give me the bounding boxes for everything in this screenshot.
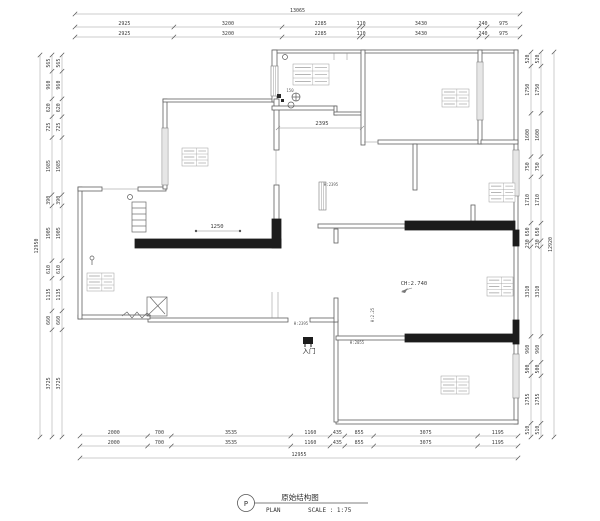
wall — [378, 140, 481, 144]
dim-label: 660 — [46, 316, 52, 325]
dim-label: 12955 — [291, 452, 306, 458]
dim-chain-top: 2925320022851103430240975292532002285110… — [73, 8, 522, 39]
dim-label: 3200 — [222, 21, 234, 27]
window — [162, 128, 168, 185]
dim-label: 3310 — [525, 286, 531, 298]
room-info-table — [487, 277, 513, 296]
load-bearing-wall — [513, 230, 519, 246]
drain-size-label: 150 — [286, 88, 294, 93]
dim-label: 565 — [56, 59, 62, 68]
room-info-table — [442, 89, 469, 107]
beam-height-label-1: H:2395 — [324, 182, 339, 187]
dim-label: 565 — [46, 59, 52, 68]
dim-label: 650 — [525, 227, 531, 236]
dim-label: 975 — [499, 21, 508, 27]
room-info-table — [182, 148, 208, 166]
dim-label: 510 — [525, 426, 531, 435]
title-block: P 原始结构图 PLAN SCALE : 1:75 — [238, 492, 369, 514]
dim-label: 960 — [525, 345, 531, 354]
wall — [78, 187, 102, 191]
wall — [310, 318, 336, 322]
dim-label: 610 — [56, 265, 62, 274]
dim-label: 3310 — [535, 286, 541, 298]
plan-symbol-letter: P — [244, 500, 248, 508]
dim-label: 620 — [56, 103, 62, 112]
dim-label: 2925 — [118, 21, 130, 27]
ceiling-height-label: CH:2.740 — [401, 281, 428, 287]
wall — [334, 229, 338, 243]
dim-label: 1195 — [492, 430, 504, 436]
shaft-icon — [147, 297, 167, 316]
dim-label: 110 — [357, 31, 366, 37]
dim-label: 240 — [478, 31, 487, 37]
room-info-table — [87, 273, 114, 291]
dim-label: 2285 — [315, 21, 327, 27]
plan-word: PLAN — [266, 507, 281, 514]
dim-label: 520 — [535, 55, 541, 64]
dim-label: 650 — [535, 227, 541, 236]
dim-chain-right: 5201750160075017106502303310960500175551… — [525, 50, 556, 439]
wall — [318, 224, 405, 228]
dim-label: 230 — [535, 239, 541, 248]
floor-plan-sheet: 2925320022851103430240975292532002285110… — [0, 0, 600, 521]
dim-label: 13065 — [290, 8, 305, 14]
dim-label: 700 — [155, 430, 164, 436]
dim-label: 1710 — [535, 194, 541, 206]
dim-label: 435 — [333, 430, 342, 436]
entry-icon — [303, 337, 313, 347]
load-bearing-wall — [405, 334, 515, 342]
dim-label: 3200 — [222, 31, 234, 37]
beam-height-label-4: H:2.25 — [370, 307, 375, 322]
dim-chain-left: 5659606207251985390190561011356603725565… — [34, 53, 64, 439]
dim-label: 3725 — [46, 377, 52, 389]
switch-icon — [90, 256, 94, 265]
dim-label: 230 — [525, 239, 531, 248]
ceiling-height-arrow — [401, 288, 412, 293]
wall — [334, 320, 338, 422]
dim-label: 1985 — [46, 160, 52, 172]
dim-label: 610 — [46, 265, 52, 274]
dim-label: 1135 — [56, 289, 62, 301]
entry-label: 入门 — [303, 346, 316, 355]
dim-label: 3075 — [420, 430, 432, 436]
dim-label: 1710 — [525, 194, 531, 206]
dim-label: 1755 — [525, 393, 531, 405]
dim-label: 960 — [46, 81, 52, 90]
dim-label: 3430 — [415, 21, 427, 27]
wall — [361, 50, 365, 145]
dim-label: 3535 — [225, 440, 237, 446]
dim-label: 3075 — [420, 440, 432, 446]
interior-dim-a-label: 2395 — [315, 121, 328, 127]
dim-label: 750 — [535, 162, 541, 171]
scale-label: SCALE : 1:75 — [308, 507, 352, 514]
wall — [138, 187, 166, 191]
dim-label: 110 — [357, 21, 366, 27]
dim-label: 1135 — [46, 289, 52, 301]
socket-icon — [128, 195, 133, 200]
dim-label: 1750 — [535, 84, 541, 96]
fan-icon — [292, 93, 300, 101]
dim-label: 975 — [499, 31, 508, 37]
dim-label: 510 — [535, 426, 541, 435]
window — [513, 354, 519, 398]
dim-label: 1755 — [535, 393, 541, 405]
dim-label: 2925 — [118, 31, 130, 37]
dim-label: 620 — [46, 103, 52, 112]
dim-label: 750 — [525, 162, 531, 171]
dim-label: 1985 — [56, 160, 62, 172]
interior-dim-b — [195, 230, 241, 232]
dim-label: 2000 — [108, 430, 120, 436]
dim-chain-bottom: 2000700353511604358553075119520007003535… — [78, 430, 520, 460]
dim-label: 390 — [46, 196, 52, 205]
dim-label: 855 — [355, 430, 364, 436]
wall — [148, 318, 288, 322]
load-bearing-wall — [513, 320, 519, 344]
dim-label: 3725 — [56, 377, 62, 389]
window — [271, 66, 278, 96]
wall — [274, 185, 279, 222]
dim-label: 2285 — [315, 31, 327, 37]
dim-label: 240 — [478, 21, 487, 27]
floor-plan-svg: 2925320022851103430240975292532002285110… — [0, 0, 600, 521]
dim-label: 435 — [333, 440, 342, 446]
dim-label: 960 — [56, 81, 62, 90]
dim-label: 2000 — [108, 440, 120, 446]
wall — [413, 144, 417, 190]
wall — [336, 336, 408, 340]
wall — [272, 106, 336, 110]
dim-label: 1160 — [304, 440, 316, 446]
dim-label: 725 — [56, 123, 62, 132]
dim-label: 1600 — [525, 129, 531, 141]
dim-label: 500 — [525, 365, 531, 374]
load-bearing-wall — [135, 239, 281, 248]
dim-label: 520 — [525, 55, 531, 64]
dim-label: 725 — [46, 123, 52, 132]
room-info-table — [489, 183, 515, 202]
interior-dim-b-label: 1250 — [210, 224, 223, 230]
dim-label: 1195 — [492, 440, 504, 446]
wall — [78, 315, 150, 319]
wall — [334, 298, 338, 322]
sheet-title: 原始结构图 — [281, 492, 319, 502]
beam-height-label-2: H:2395 — [294, 321, 309, 326]
dim-label: 1750 — [525, 84, 531, 96]
dim-label: 1905 — [56, 227, 62, 239]
radiator-icon — [132, 202, 146, 232]
load-bearing-wall — [405, 221, 515, 230]
dim-label: 660 — [56, 316, 62, 325]
wall — [334, 112, 364, 115]
wall — [336, 420, 518, 424]
light-icon — [283, 55, 288, 60]
wall — [481, 140, 518, 144]
dim-label: 855 — [355, 440, 364, 446]
dim-label: 12950 — [34, 238, 40, 253]
dim-label: 500 — [535, 365, 541, 374]
dim-label: 1905 — [46, 227, 52, 239]
dim-label: 1600 — [535, 129, 541, 141]
dim-label: 12920 — [548, 237, 554, 252]
beam-height-label-3: H:2055 — [350, 340, 365, 345]
dim-label: 3430 — [415, 31, 427, 37]
dim-label: 390 — [56, 196, 62, 205]
room-info-table — [293, 64, 329, 85]
dim-label: 3535 — [225, 430, 237, 436]
window — [477, 62, 483, 120]
dim-label: 1160 — [304, 430, 316, 436]
wall — [163, 99, 278, 102]
wall — [78, 187, 82, 319]
dim-label: 700 — [155, 440, 164, 446]
room-info-table — [441, 376, 469, 394]
dim-label: 960 — [535, 345, 541, 354]
